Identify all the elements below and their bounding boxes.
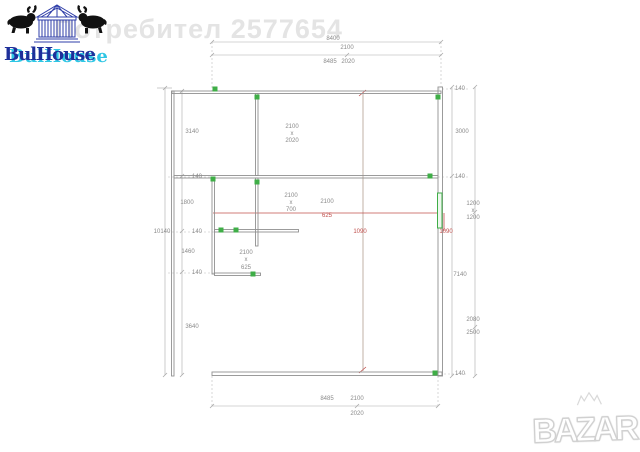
bulhouse-logo-graphic [2,4,112,48]
window-marker [438,193,443,228]
bulhouse-wordmark: BulHouse BulHouse [4,44,114,66]
bulhouse-logo: BulHouse BulHouse [2,4,112,66]
red-annotation-lines [213,90,444,373]
bull-right-icon [77,5,106,34]
bazar-logo-text: BAZAR [532,409,637,452]
green-markers [211,87,441,376]
dimension-ticks [163,40,477,408]
bulhouse-wordmark-text: BulHouse [4,44,95,65]
dimension-lines [157,42,475,406]
bull-left-icon [7,5,36,34]
interior-walls [174,94,438,276]
floorplan-drawing [0,0,640,452]
bazar-logo-watermark: BAZAR [523,392,640,452]
floorplan-image: Потребител 2577654 [0,0,640,452]
house-icon [34,5,80,42]
bazar-antlers-icon [575,391,605,406]
extension-lines [168,42,468,406]
